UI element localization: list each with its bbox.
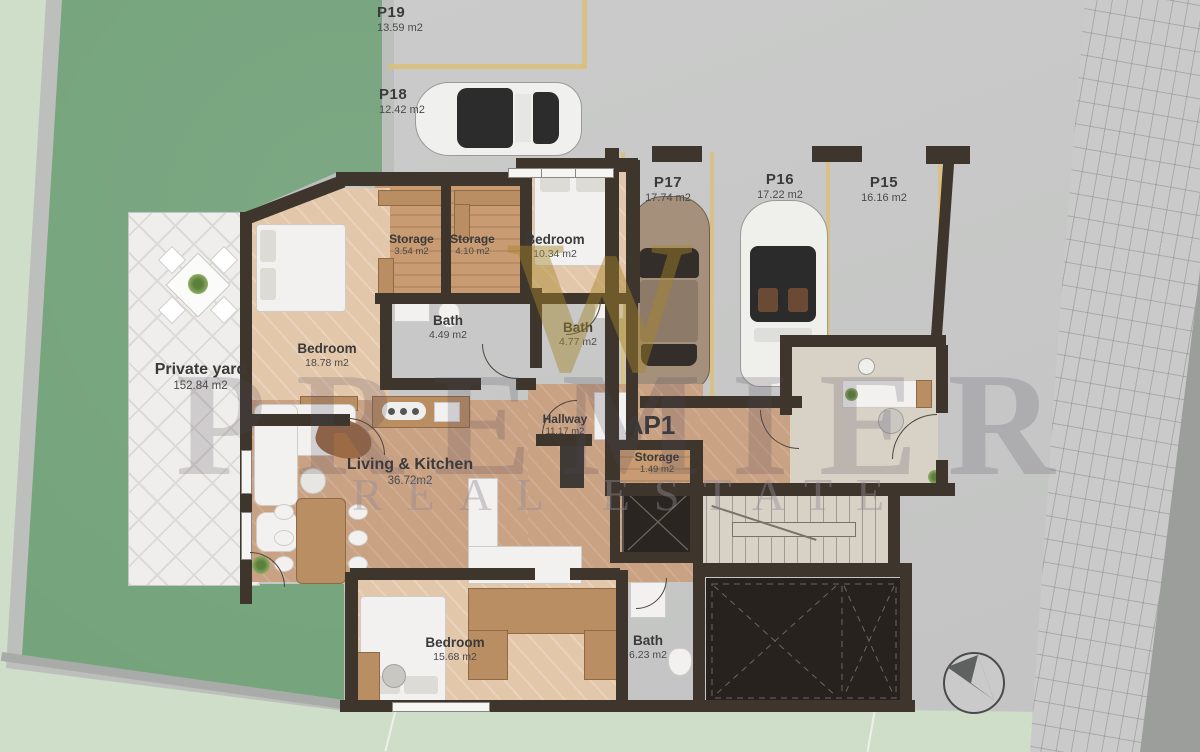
window bbox=[241, 450, 252, 494]
wall bbox=[385, 378, 481, 390]
wall bbox=[900, 575, 912, 712]
wall bbox=[693, 570, 705, 712]
parking-line bbox=[388, 64, 586, 69]
tall-cabinet bbox=[560, 446, 584, 488]
wall bbox=[936, 345, 948, 413]
room-label-storage3: Storage 1.49 m2 bbox=[612, 450, 702, 475]
cooktop-burner bbox=[388, 408, 395, 415]
wall bbox=[605, 483, 955, 496]
wall bbox=[936, 460, 948, 496]
dark-storage-room bbox=[706, 578, 902, 704]
lobby-bin bbox=[858, 358, 875, 375]
floor-plan: P19 13.59 m2 P18 12.42 m2 P17 17.74 m2 P… bbox=[0, 0, 1200, 752]
room-label-hallway: Hallway 11.17 m2 bbox=[520, 412, 610, 437]
wall bbox=[246, 414, 350, 426]
cooktop-burner bbox=[412, 408, 419, 415]
parking-label-p18: P18 12.42 m2 bbox=[379, 86, 459, 117]
wall bbox=[375, 293, 535, 304]
room-label-bedroom-bottom: Bedroom 15.68 m2 bbox=[405, 635, 505, 663]
parking-wall-stub bbox=[812, 146, 862, 162]
window bbox=[508, 168, 614, 178]
wall bbox=[640, 396, 802, 408]
parking-label-p16: P16 17.22 m2 bbox=[740, 171, 820, 202]
wall bbox=[888, 494, 900, 570]
bed-left-pillow bbox=[260, 230, 276, 262]
stair-rail bbox=[732, 522, 856, 537]
parking-wall-stub bbox=[652, 146, 702, 162]
wall bbox=[350, 568, 535, 580]
bed-top-pillow bbox=[540, 176, 570, 192]
lobby-chair bbox=[878, 408, 904, 434]
parking-label-p15: P15 16.16 m2 bbox=[844, 174, 924, 205]
bed-top-pillow bbox=[576, 176, 606, 192]
parking-right-wall bbox=[930, 150, 955, 348]
side-table bbox=[300, 468, 326, 494]
dining-chair bbox=[274, 530, 294, 546]
patio-plant bbox=[188, 274, 208, 294]
island-sink bbox=[434, 402, 460, 422]
wall bbox=[693, 563, 912, 577]
wall bbox=[788, 335, 946, 347]
wall bbox=[610, 552, 703, 563]
bed-bottom-pillow bbox=[404, 676, 438, 694]
dining-chair bbox=[348, 504, 368, 520]
window bbox=[392, 702, 490, 712]
wall bbox=[380, 298, 392, 390]
desk-chair bbox=[382, 664, 406, 688]
elevator bbox=[622, 488, 694, 556]
wardrobe bbox=[468, 588, 622, 634]
room-label-bedroom-top: Bedroom 10.34 m2 bbox=[505, 232, 605, 260]
apartment-label: AP1 bbox=[608, 410, 692, 441]
room-label-bath3: Bath 6.23 m2 bbox=[603, 633, 693, 661]
room-label-bath1: Bath 4.49 m2 bbox=[403, 313, 493, 341]
dining-table bbox=[296, 498, 346, 584]
parking-label-p19: P19 13.59 m2 bbox=[377, 4, 457, 35]
wall bbox=[336, 172, 532, 186]
room-label-bedroom-left: Bedroom 18.78 m2 bbox=[277, 341, 377, 369]
lobby-plant bbox=[845, 388, 858, 401]
dining-chair bbox=[274, 504, 294, 520]
room-label-bath2: Bath 4.77 m2 bbox=[533, 320, 623, 348]
dining-chair bbox=[348, 530, 368, 546]
cooktop-burner bbox=[400, 408, 407, 415]
bed-left-pillow bbox=[260, 268, 276, 300]
car-p17 bbox=[630, 196, 708, 388]
wall bbox=[345, 572, 358, 712]
room-label-storage2: Storage 4.10 m2 bbox=[430, 232, 515, 257]
lobby-desk-end bbox=[916, 380, 932, 408]
wall bbox=[516, 378, 536, 390]
wall bbox=[610, 440, 702, 450]
parking-label-p17: P17 17.74 m2 bbox=[628, 174, 708, 205]
shelves bbox=[378, 190, 446, 206]
wall bbox=[570, 568, 620, 580]
north-compass-icon bbox=[938, 648, 1010, 720]
room-label-private-yard: Private yard 152.84 m2 bbox=[133, 361, 268, 393]
parking-line bbox=[582, 0, 587, 68]
room-label-living-kitchen: Living & Kitchen 36.72m2 bbox=[330, 456, 490, 488]
